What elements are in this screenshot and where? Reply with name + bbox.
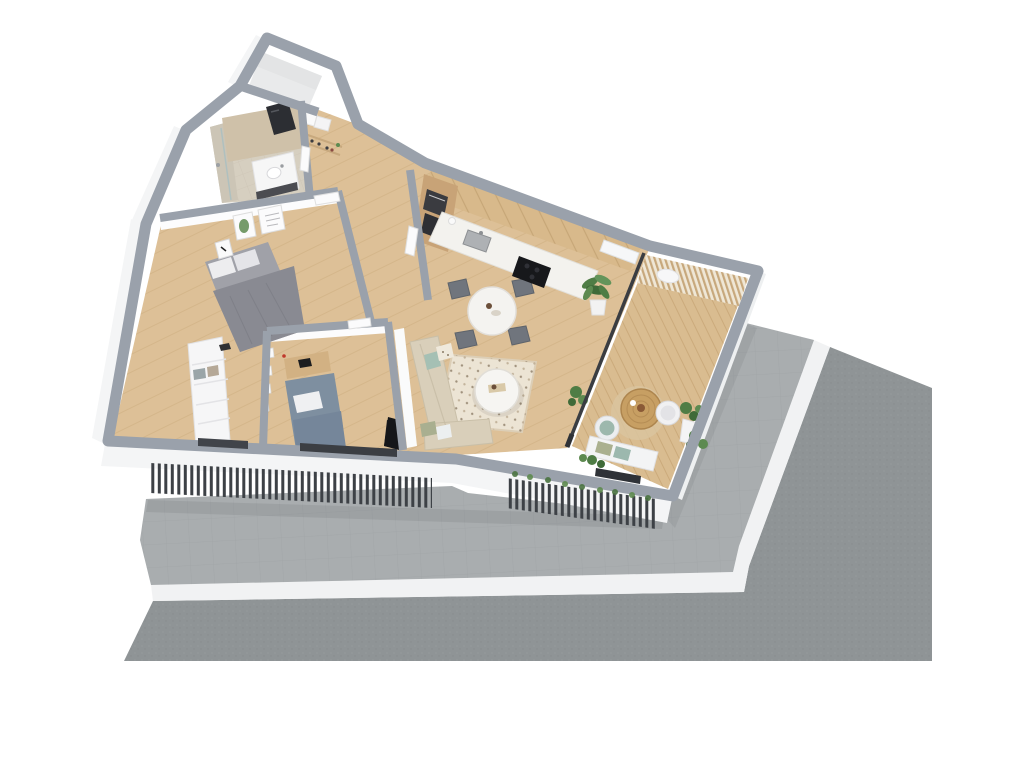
pillow-dot: [442, 351, 444, 353]
sink-faucet: [479, 231, 483, 235]
floorplan-canvas: [0, 0, 1024, 768]
plant-fringe: [579, 484, 585, 490]
wardrobe-clothes-1: [193, 368, 206, 380]
balcony-stool-cushion: [600, 421, 615, 436]
shower-head: [216, 163, 220, 167]
plant-cluster: [579, 454, 587, 462]
dining-chair: [508, 326, 530, 345]
floorplan-render: [0, 0, 1024, 768]
plant-cluster: [568, 398, 576, 406]
dining-chair: [455, 330, 477, 349]
plant-cluster: [597, 460, 605, 468]
plant-fringe: [562, 481, 568, 487]
burner: [530, 275, 535, 280]
shelf-item: [310, 139, 313, 142]
faucet: [280, 164, 283, 167]
red-detail: [282, 354, 286, 358]
table-centerpiece: [637, 404, 645, 412]
dining-table: [468, 287, 516, 335]
shelf-item: [317, 142, 320, 145]
bathroom-door: [300, 146, 310, 172]
plant-fringe: [612, 489, 618, 495]
kids-room-left-wall: [263, 331, 267, 448]
balcony-chair-cushion: [661, 406, 676, 421]
plant-fringe: [512, 471, 518, 477]
coffee-table-bottle: [492, 385, 497, 390]
shelf-item: [330, 148, 333, 151]
burner: [525, 264, 530, 269]
plant-fringe: [645, 495, 651, 501]
shelf-plant: [336, 143, 340, 147]
wardrobe-clothes-2: [207, 365, 219, 377]
poster-plant-art: [239, 219, 249, 233]
plant-fringe: [597, 487, 603, 493]
plant-fringe: [545, 477, 551, 483]
plant-pot: [590, 300, 606, 315]
table-cup: [630, 400, 636, 406]
table-plate: [491, 310, 501, 316]
plant-cluster: [680, 402, 692, 414]
plant-cluster: [587, 455, 597, 465]
burner: [535, 268, 540, 273]
dining-chair: [448, 279, 470, 299]
table-vase: [486, 303, 492, 309]
pillow-dot: [447, 354, 449, 356]
plant-fringe: [629, 492, 635, 498]
shelf-item: [325, 146, 328, 149]
kettle: [449, 218, 456, 225]
wardrobe: [188, 337, 230, 446]
plant-fringe: [527, 474, 533, 480]
